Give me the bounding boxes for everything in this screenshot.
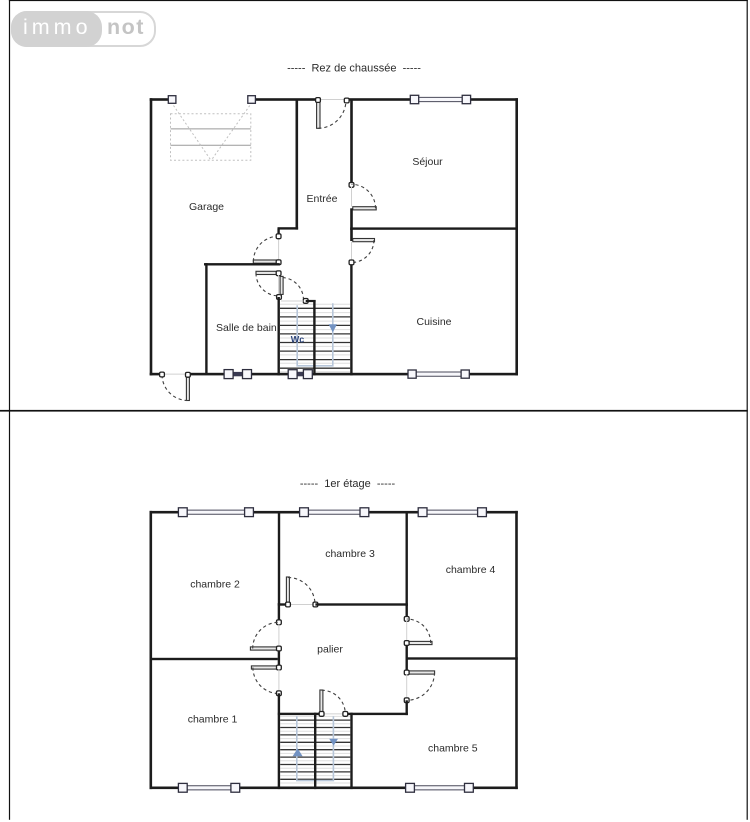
svg-text:palier: palier: [317, 643, 343, 655]
svg-text:chambre 2: chambre 2: [190, 578, 240, 590]
svg-text:chambre 4: chambre 4: [446, 564, 496, 576]
svg-text:Séjour: Séjour: [412, 156, 443, 168]
svg-text:Wc: Wc: [291, 335, 305, 345]
svg-text:Salle de bain: Salle de bain: [216, 322, 277, 334]
svg-text:----- 1er étage -----: ----- 1er étage -----: [300, 478, 396, 490]
svg-text:chambre 3: chambre 3: [325, 548, 375, 560]
svg-text:Garage: Garage: [189, 201, 224, 213]
svg-text:Entrée: Entrée: [307, 193, 338, 205]
svg-text:chambre 1: chambre 1: [188, 714, 238, 726]
svg-text:----- Rez de chaussée -----: ----- Rez de chaussée -----: [287, 63, 421, 75]
svg-text:Cuisine: Cuisine: [416, 316, 451, 328]
svg-text:chambre 5: chambre 5: [428, 742, 478, 754]
